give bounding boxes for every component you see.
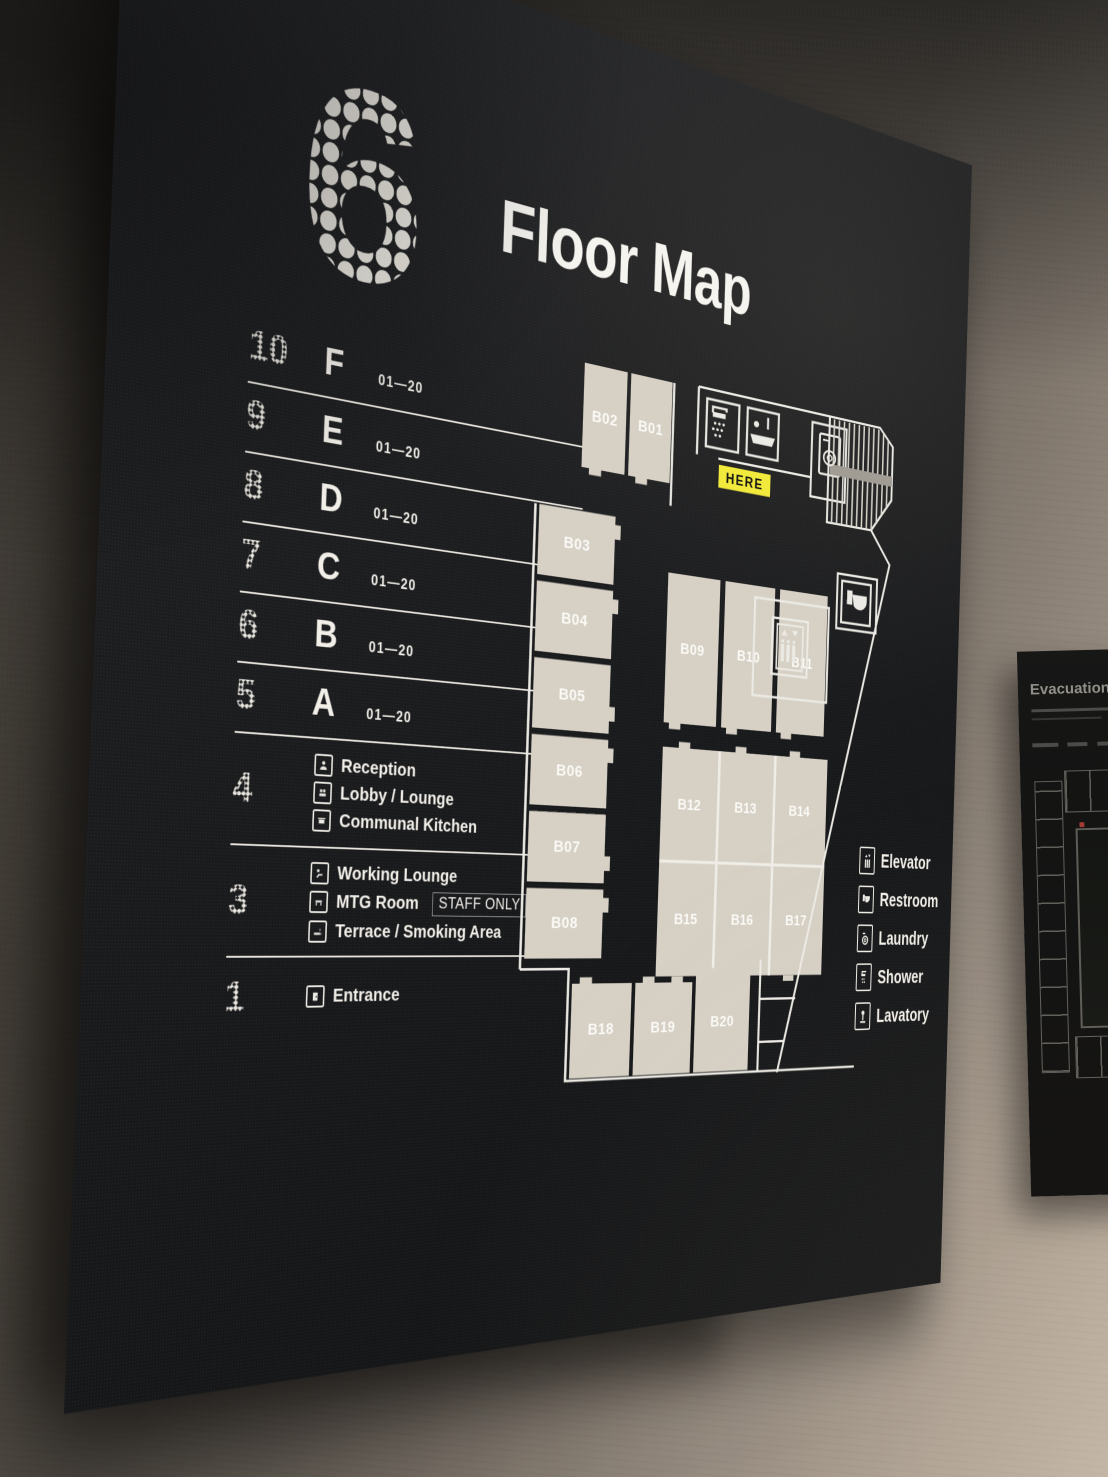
amenity-entrance: Entrance (306, 984, 400, 1008)
amenity-lobby-lounge: Lobby / Lounge (313, 781, 478, 812)
amenity-terrace: Terrace / Smoking Area (308, 920, 526, 943)
floor-number-badge: 6 (297, 41, 430, 324)
stairs-icon (828, 419, 894, 534)
floor-map-board: 6 Floor Map 10 F 01—20 9 E 01—20 8 D 01—… (64, 0, 972, 1414)
shower-icon (856, 963, 872, 991)
legend-lavatory: Lavatory (854, 1001, 935, 1031)
room-b19: B19 (632, 982, 692, 1075)
amenity-working-lounge: Working Lounge (310, 861, 527, 888)
room-b05: B05 (532, 657, 611, 734)
shower-area-icon (712, 407, 727, 439)
room-b09: B09 (664, 572, 721, 727)
legend-laundry: Laundry (857, 924, 938, 952)
restroom-area-icon (847, 590, 867, 611)
room-b18: B18 (569, 983, 632, 1079)
room-b03: B03 (537, 504, 616, 585)
evacuation-route-sign: Evacuation Route (1017, 648, 1108, 1196)
laundry-area-icon (822, 440, 836, 467)
here-badge: HERE (718, 465, 770, 498)
room-block-b12-b17: B12 B13 B14 B15 B16 B17 (656, 747, 828, 977)
elevator-icon (859, 846, 875, 874)
bath-area-icon (750, 414, 775, 447)
evacuation-sign-title: Evacuation Route (1030, 678, 1108, 698)
reception-icon (314, 754, 333, 777)
staff-only-tag: STAFF ONLY (432, 892, 527, 917)
legend-shower: Shower (856, 963, 937, 991)
room-b13: B13 (734, 801, 757, 818)
amenity-communal-kitchen: Communal Kitchen (312, 809, 477, 838)
amenity-reception: Reception (314, 754, 479, 786)
restroom-icon (858, 885, 874, 913)
room-b17: B17 (785, 913, 807, 929)
legend-elevator: Elevator (859, 846, 940, 876)
room-b14: B14 (788, 804, 810, 821)
room-b20: B20 (693, 974, 750, 1073)
legend-restroom: Restroom (858, 885, 939, 914)
working-lounge-icon (310, 861, 329, 884)
room-b08: B08 (524, 888, 603, 959)
communal-kitchen-icon (312, 809, 331, 832)
laundry-icon (857, 924, 873, 952)
room-b16: B16 (731, 912, 754, 928)
room-b04: B04 (535, 580, 614, 659)
lobby-lounge-icon (313, 781, 332, 804)
room-b06: B06 (529, 734, 608, 809)
room-b07: B07 (527, 811, 606, 884)
lavatory-icon (854, 1002, 870, 1030)
room-b15: B15 (674, 912, 698, 928)
terrace-icon (308, 920, 327, 942)
floor-plan: B02 B01 B03 B04 B05 B06 B07 B08 B09 B10 (508, 342, 906, 1092)
evacuation-mini-map (1034, 767, 1108, 1101)
board-title: Floor Map (499, 181, 753, 333)
room-b01: B01 (628, 373, 673, 483)
entrance-icon (306, 985, 325, 1008)
room-b02: B02 (581, 363, 627, 475)
room-b11: B11 (776, 589, 828, 736)
room-b12: B12 (677, 797, 701, 814)
amenity-mtg-room: MTG Room STAFF ONLY (309, 889, 527, 917)
room-b10: B10 (721, 581, 775, 732)
mtg-room-icon (309, 891, 328, 914)
map-legend: Elevator Restroom Laundry Shower Lavator… (854, 846, 939, 1030)
